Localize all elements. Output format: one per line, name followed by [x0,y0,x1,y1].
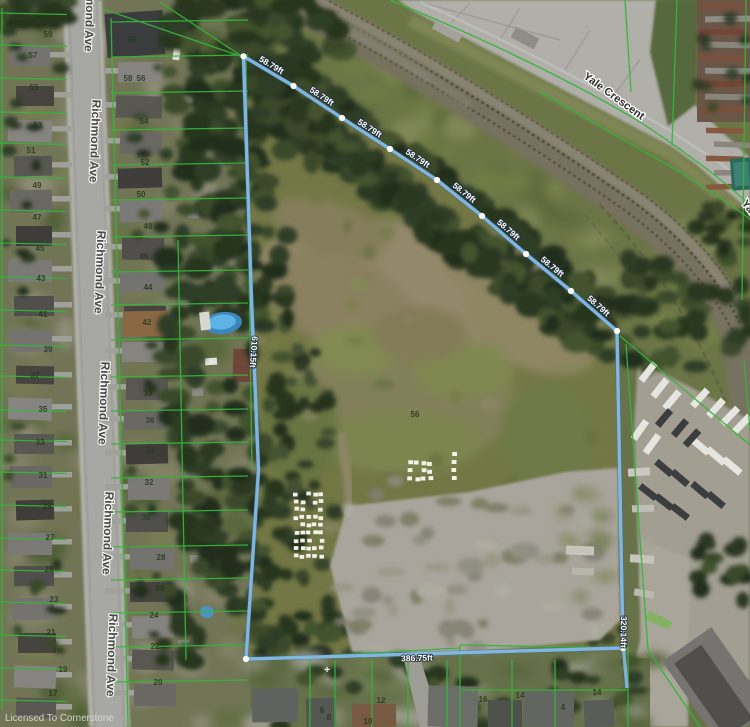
svg-text:Licensed To Cornerstone: Licensed To Cornerstone [5,713,114,724]
svg-text:27: 27 [46,533,55,542]
svg-text:55: 55 [30,83,39,92]
svg-text:Richmond Ave: Richmond Ave [92,230,109,314]
svg-text:20: 20 [154,678,163,687]
svg-text:41: 41 [39,310,48,319]
svg-text:43: 43 [37,274,46,283]
svg-text:38: 38 [144,389,153,398]
svg-text:46: 46 [140,252,149,261]
svg-text:Richmond Ave: Richmond Ave [87,99,104,183]
svg-text:10: 10 [364,717,373,726]
svg-text:386.75ft: 386.75ft [401,653,433,664]
svg-text:34: 34 [146,446,155,455]
svg-text:320.14ft: 320.14ft [618,616,629,648]
svg-text:29: 29 [43,502,52,511]
svg-text:37: 37 [31,371,40,380]
svg-text:8: 8 [327,713,332,722]
svg-text:54: 54 [140,117,149,126]
svg-text:39: 39 [44,345,53,354]
svg-text:23: 23 [50,595,59,604]
svg-text:59: 59 [44,30,53,39]
svg-text:36: 36 [146,416,155,425]
svg-text:52: 52 [141,158,150,167]
svg-text:12: 12 [377,696,386,705]
svg-text:14: 14 [593,688,602,697]
svg-text:42: 42 [143,318,152,327]
svg-text:60: 60 [128,35,137,44]
svg-text:56: 56 [411,410,420,419]
svg-text:25: 25 [45,565,54,574]
svg-text:57: 57 [29,51,38,60]
svg-text:21: 21 [47,628,56,637]
svg-text:30: 30 [142,513,151,522]
svg-text:Richmond Ave: Richmond Ave [104,613,121,697]
svg-text:16: 16 [479,695,488,704]
svg-text:6: 6 [320,706,325,715]
svg-text:44: 44 [144,283,153,292]
svg-text:32: 32 [145,478,154,487]
svg-text:58: 58 [124,74,133,83]
svg-text:33: 33 [36,438,45,447]
svg-text:Richmond Ave: Richmond Ave [96,361,113,445]
svg-text:14: 14 [516,691,525,700]
svg-text:56: 56 [137,74,146,83]
svg-text:Richmond Ave: Richmond Ave [82,0,99,52]
svg-text:26: 26 [156,584,165,593]
svg-text:24: 24 [150,611,159,620]
svg-text:49: 49 [33,181,42,190]
svg-text:+: + [324,665,330,676]
svg-text:31: 31 [39,471,48,480]
svg-text:53: 53 [34,121,43,130]
svg-text:17: 17 [49,689,58,698]
svg-text:51: 51 [27,146,36,155]
svg-text:4: 4 [561,703,566,712]
svg-text:Richmond Ave: Richmond Ave [100,491,117,575]
svg-text:47: 47 [33,213,42,222]
svg-text:50: 50 [137,190,146,199]
svg-text:19: 19 [59,665,68,674]
svg-text:45: 45 [36,244,45,253]
svg-text:35: 35 [39,405,48,414]
svg-text:28: 28 [157,553,166,562]
svg-text:48: 48 [144,222,153,231]
svg-text:22: 22 [151,642,160,651]
